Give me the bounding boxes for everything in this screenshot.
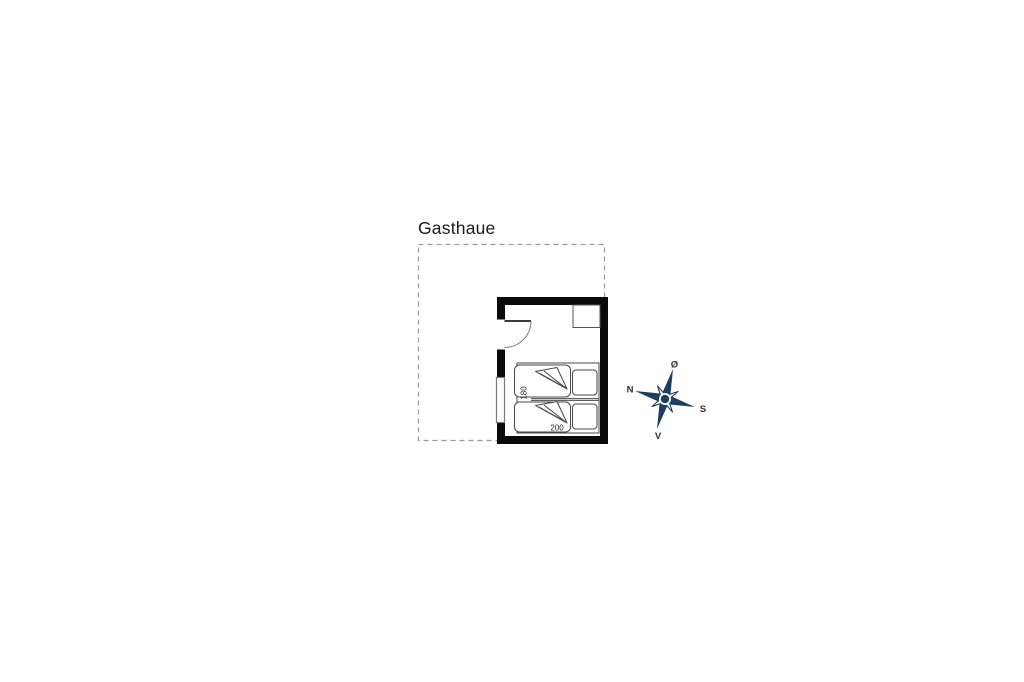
compass-rose: N Ø S V — [627, 360, 707, 443]
pillow-bottom — [573, 404, 598, 429]
compass-label-east: Ø — [671, 360, 678, 371]
compass-label-north: N — [627, 385, 634, 396]
window — [497, 378, 505, 423]
compass-star — [627, 361, 703, 437]
door-swing — [505, 321, 532, 348]
pillow-top — [573, 370, 598, 395]
bed-length-label: 200 — [550, 424, 564, 433]
double-bed: 180 200 — [515, 363, 600, 433]
door-opening — [496, 320, 507, 350]
closet — [573, 305, 600, 328]
bed-width-label: 180 — [520, 386, 529, 400]
compass-label-south: S — [700, 404, 706, 415]
compass-label-west: V — [655, 431, 662, 442]
floorplan-drawing: 180 200 — [0, 0, 1024, 682]
door-arc — [505, 321, 531, 348]
floorplan-canvas: Gasthaue — [0, 0, 1024, 682]
